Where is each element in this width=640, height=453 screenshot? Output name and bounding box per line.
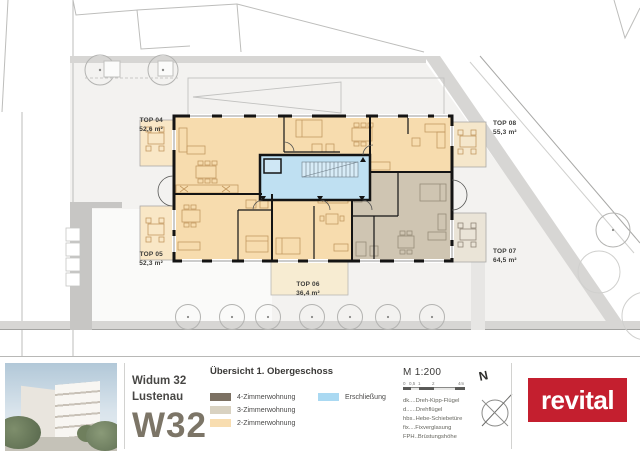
north-label: N	[478, 368, 490, 384]
compass-icon	[476, 392, 516, 432]
balcony-top07	[453, 213, 486, 262]
unit-area: 36,4 m²	[280, 289, 336, 298]
elevator	[264, 159, 281, 173]
scale-bar-segment	[455, 387, 465, 390]
unit-name: TOP 05	[139, 250, 163, 259]
project-code: W32	[132, 408, 207, 443]
stairwell	[260, 155, 370, 200]
unit-label-top08: TOP 08 55,3 m²	[493, 119, 517, 138]
legend-label-4zi: 4-Zimmerwohnung	[237, 394, 295, 401]
building-rendering	[5, 363, 117, 451]
legend-item-4zi: 4-Zimmerwohnung	[210, 393, 295, 401]
site-plan: TOP 04 52,6 m² TOP 05 52,3 m² TOP 06 36,…	[0, 0, 640, 360]
scale-tick: 4m	[458, 381, 464, 386]
unit-area: 52,6 m²	[139, 125, 163, 134]
unit-name: TOP 07	[493, 247, 517, 256]
legend-swatch-3zi	[210, 406, 231, 414]
unit-area: 64,5 m²	[493, 256, 517, 265]
scale-bar-segment	[403, 387, 411, 390]
project-name-line2: Lustenau	[132, 390, 207, 406]
unit-label-top07: TOP 07 64,5 m²	[493, 247, 517, 266]
unit-area: 55,3 m²	[493, 128, 517, 137]
legend-item-3zi: 3-Zimmerwohnung	[210, 406, 295, 414]
unit-label-top04: TOP 04 52,6 m²	[139, 116, 163, 135]
unit-top05-area	[174, 180, 272, 261]
abbrev-line: d......Drehflügel	[403, 406, 467, 415]
unit-name: TOP 04	[139, 116, 163, 125]
abbrev-line: fix....Fixverglasung	[403, 424, 467, 433]
project-name-line1: Widum 32	[132, 374, 207, 390]
scale-bar-segment	[419, 387, 434, 390]
street-band-top	[70, 56, 426, 63]
footer-vertical-divider-2	[511, 363, 512, 449]
sheet-title: Übersicht 1. Obergeschoss	[210, 366, 333, 377]
project-block: Widum 32 Lustenau W32	[132, 374, 207, 443]
unit-area: 52,3 m²	[139, 259, 163, 268]
entrance-walkway	[471, 262, 485, 330]
legend-swatch-4zi	[210, 393, 231, 401]
scale-label: M 1:200	[403, 367, 467, 378]
scale-tick: 0	[403, 381, 406, 386]
brand-logo: revital	[528, 378, 627, 422]
legend-item-circulation: Erschließung	[318, 393, 386, 401]
abbrev-line: dk....Dreh-Kipp-Flügel	[403, 397, 467, 406]
unit-label-top05: TOP 05 52,3 m²	[139, 250, 163, 269]
balcony-top08	[453, 122, 486, 167]
abbrev-line: hbs..Hebe-Schiebetüre	[403, 415, 467, 424]
street-band-bottom	[0, 321, 640, 329]
scale-tick: 2	[432, 381, 435, 386]
scale-block: M 1:200 0 0,5 1 2 4m dk....Dreh-Kipp-Flü…	[403, 367, 467, 442]
legend-label-2zi: 2-Zimmerwohnung	[237, 420, 295, 427]
legend-swatch-circulation	[318, 393, 339, 401]
floorplan-sheet: TOP 04 52,6 m² TOP 05 52,3 m² TOP 06 36,…	[0, 0, 640, 453]
legend-swatch-2zi	[210, 419, 231, 427]
scale-bar: 0 0,5 1 2 4m	[403, 381, 467, 393]
brand-name: revital	[541, 387, 614, 413]
floor-plan-svg	[0, 0, 640, 360]
legend-item-2zi: 2-Zimmerwohnung	[210, 419, 295, 427]
unit-name: TOP 06	[280, 280, 336, 289]
abbreviations: dk....Dreh-Kipp-Flügel d......Drehflügel…	[403, 397, 467, 442]
footer-divider	[0, 356, 640, 357]
unit-name: TOP 08	[493, 119, 517, 128]
north-compass	[476, 392, 516, 432]
scale-tick: 1	[418, 381, 421, 386]
scale-tick: 0,5	[409, 381, 415, 386]
footer-vertical-divider-1	[124, 363, 125, 449]
legend-label-3zi: 3-Zimmerwohnung	[237, 407, 295, 414]
abbrev-line: FPH..Brüstungshöhe	[403, 433, 467, 442]
unit-label-top06: TOP 06 36,4 m²	[280, 280, 336, 299]
legend-label-circulation: Erschließung	[345, 394, 386, 401]
